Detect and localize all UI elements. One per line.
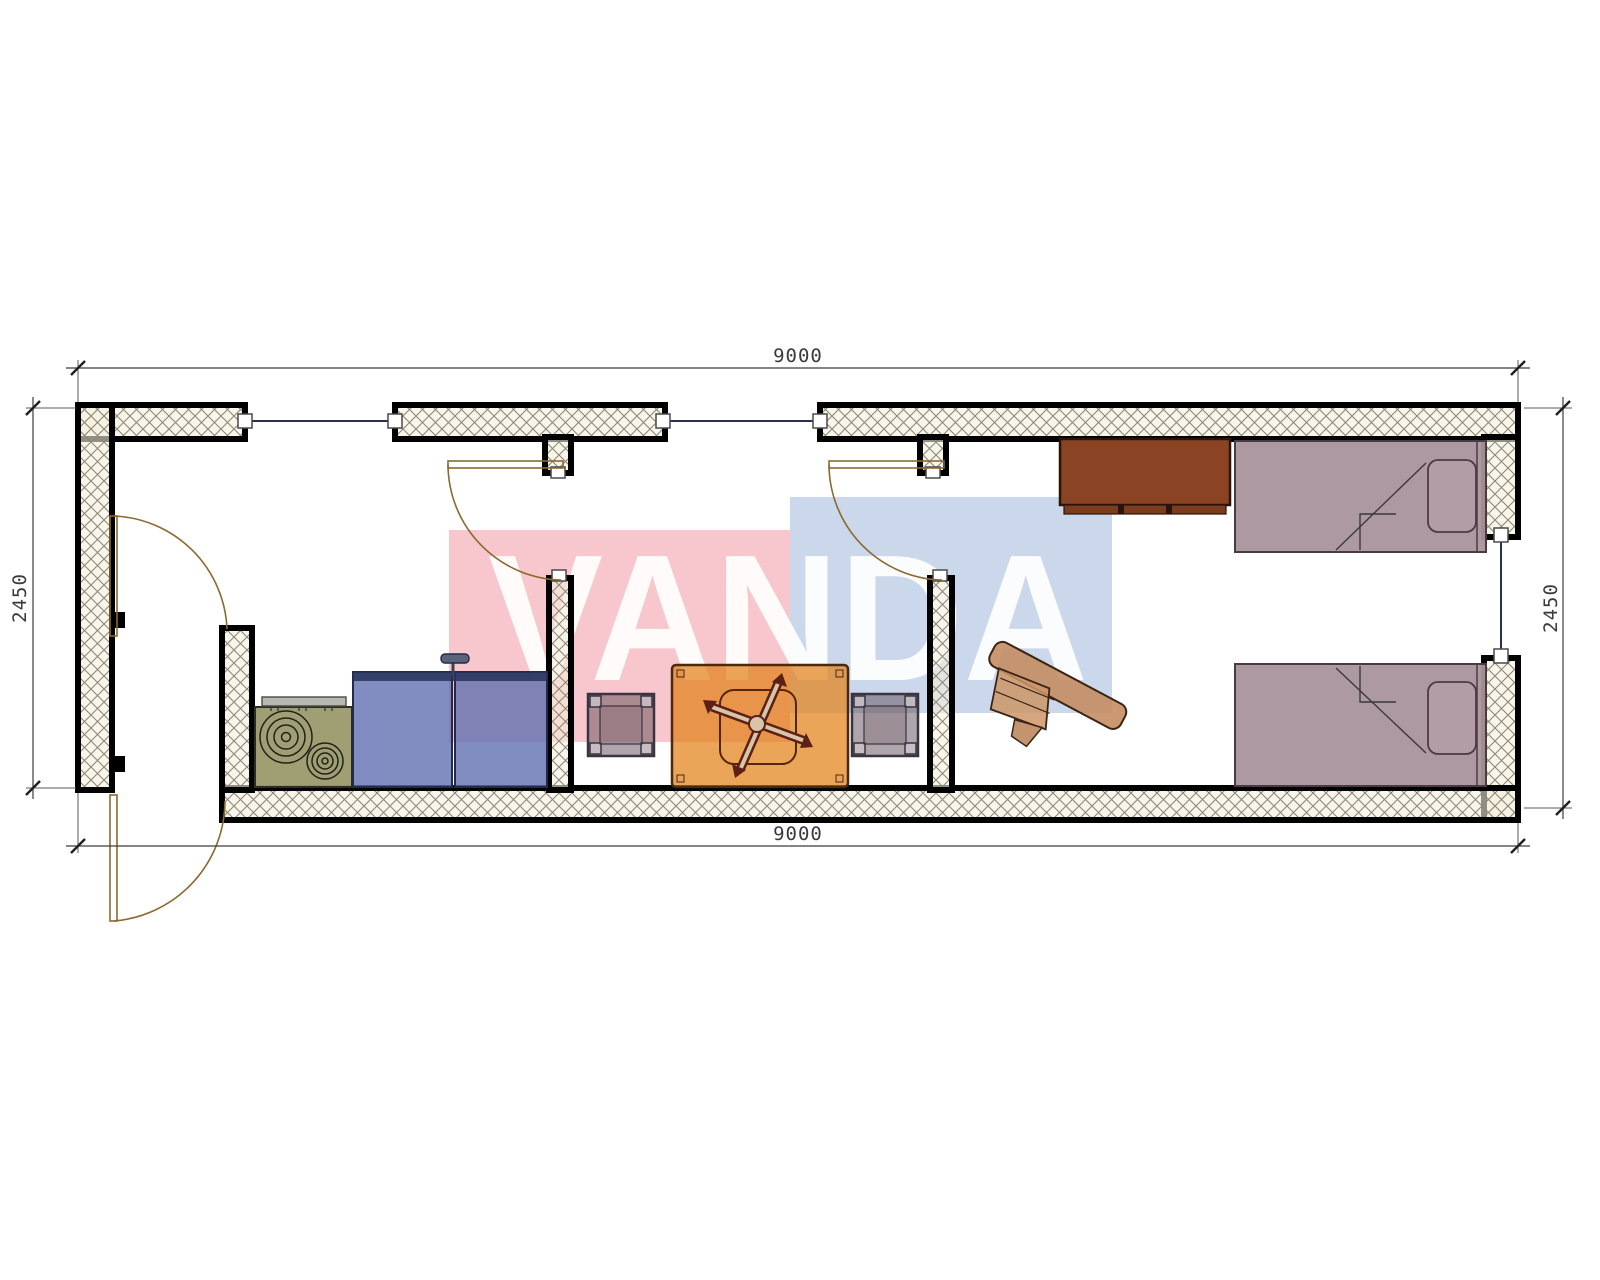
stool-2	[852, 694, 918, 756]
wall-jamb-notch-lower	[109, 756, 125, 772]
stove	[255, 697, 352, 787]
kitchen-cabinets	[353, 654, 547, 787]
hall-door	[110, 516, 227, 636]
dimension-right: 2450	[1524, 397, 1572, 819]
dimension-left: 2450	[9, 397, 76, 799]
dimension-top: 9000	[66, 345, 1530, 402]
dimension-top-label: 9000	[773, 345, 823, 367]
dining-table	[672, 665, 848, 787]
window-jamb	[1494, 649, 1508, 663]
dimension-right-label: 2450	[1540, 583, 1562, 633]
window-jamb	[813, 414, 827, 428]
bed-1	[1235, 441, 1486, 552]
wall-left	[78, 405, 112, 790]
wall-interior-kitchen	[549, 578, 571, 790]
window-jamb	[388, 414, 402, 428]
floor-plan-canvas: VANDA	[0, 0, 1600, 1280]
kitchen-cabinet-1	[353, 672, 452, 787]
bed-2	[1235, 664, 1486, 786]
entry-door	[110, 795, 225, 921]
wall-interior-hall	[222, 628, 252, 790]
wall-right-upper	[1484, 437, 1518, 537]
stool-1	[588, 694, 654, 756]
kitchen-cabinet-2	[455, 672, 547, 787]
bed-1-pillow	[1428, 460, 1476, 532]
wall-interior-bedroom	[930, 578, 952, 790]
dimension-left-label: 2450	[9, 573, 31, 623]
kitchen-counter-edge	[353, 672, 547, 681]
stove-control-panel	[262, 697, 346, 706]
wall-top-segment-2	[395, 405, 665, 439]
wardrobe	[1060, 439, 1230, 514]
wall-bottom	[222, 788, 1518, 820]
wall-top-segment-3	[820, 405, 1518, 439]
window-jamb	[1494, 528, 1508, 542]
window-jamb	[238, 414, 252, 428]
floor-plan-svg: VANDA	[0, 0, 1600, 1280]
bed-2-pillow	[1428, 682, 1476, 754]
window-jamb	[656, 414, 670, 428]
dimension-bottom-label: 9000	[773, 823, 823, 845]
